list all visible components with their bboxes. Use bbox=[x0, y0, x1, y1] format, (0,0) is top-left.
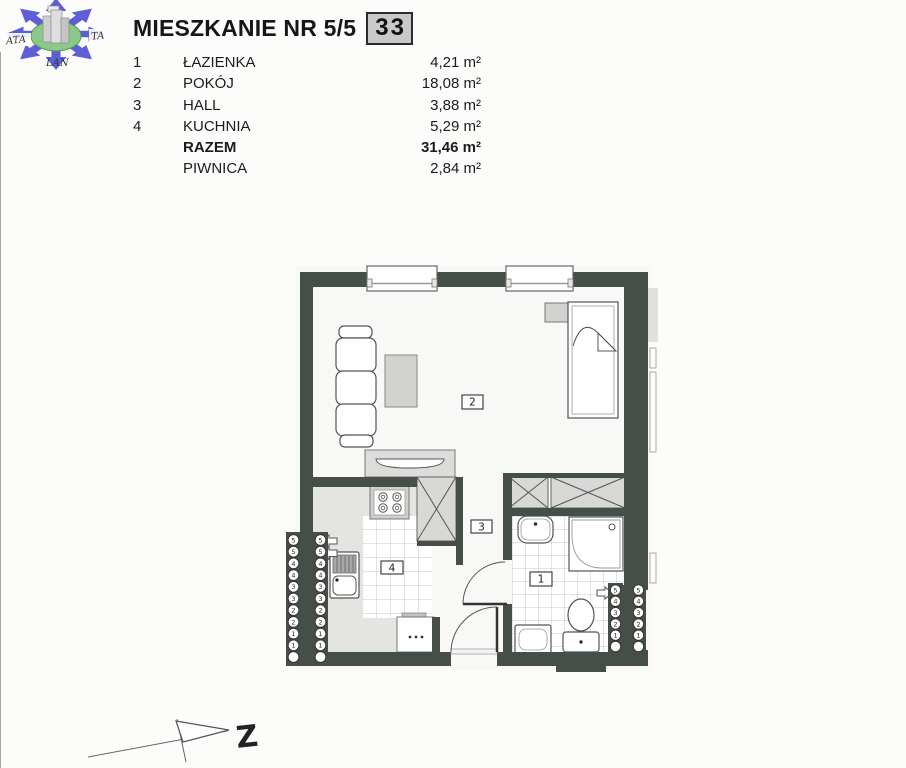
north-arrow: Z bbox=[40, 680, 300, 768]
room-name: HALL bbox=[183, 95, 353, 116]
window bbox=[367, 266, 437, 291]
buildings-icon bbox=[43, 6, 69, 43]
tv-stand bbox=[365, 450, 455, 477]
svg-text:2: 2 bbox=[291, 618, 295, 626]
logo-text-right: TA bbox=[91, 30, 105, 42]
svg-text:2: 2 bbox=[318, 607, 322, 615]
floor-plan: 5544332211 5544332211 54321 54321 2 3 4 … bbox=[270, 250, 670, 690]
svg-text:4: 4 bbox=[318, 572, 322, 580]
room-area: 5,29 m² bbox=[353, 116, 481, 137]
washing-machine bbox=[515, 625, 551, 654]
table-row: 4 KUCHNIA 5,29 m² bbox=[133, 116, 481, 137]
svg-text:5: 5 bbox=[318, 548, 322, 556]
svg-text:2: 2 bbox=[318, 618, 322, 626]
svg-text:1: 1 bbox=[636, 632, 640, 640]
room-table: 1 ŁAZIENKA 4,21 m² 2 POKÓJ 18,08 m² 3 HA… bbox=[133, 52, 481, 180]
room-area: 3,88 m² bbox=[353, 95, 481, 116]
radiator-left-outer: 5544332211 bbox=[288, 535, 299, 663]
svg-text:3: 3 bbox=[478, 522, 485, 534]
company-logo: ATA TA LAN bbox=[0, 0, 125, 75]
svg-text:2: 2 bbox=[469, 397, 476, 409]
svg-text:3: 3 bbox=[636, 609, 640, 617]
ventilation-shaft bbox=[417, 477, 456, 541]
north-arrowhead bbox=[176, 721, 229, 742]
header: MIESZKANIE NR 5/5 33 bbox=[133, 12, 413, 45]
wardrobe bbox=[551, 477, 625, 508]
svg-text:3: 3 bbox=[291, 583, 295, 591]
bathroom-sink bbox=[518, 516, 553, 543]
room-name: POKÓJ bbox=[183, 73, 353, 94]
scanned-floorplan-page: ATA TA LAN MIESZKANIE NR 5/5 33 1 ŁAZIEN… bbox=[0, 0, 906, 768]
kitchen-counter bbox=[397, 613, 434, 652]
svg-text:4: 4 bbox=[318, 560, 322, 568]
room-label-kuchnia: 4 bbox=[381, 561, 403, 575]
window bbox=[506, 266, 573, 291]
svg-text:5: 5 bbox=[291, 536, 295, 544]
shower bbox=[569, 517, 623, 571]
kitchen-sink bbox=[330, 552, 359, 598]
svg-text:4: 4 bbox=[613, 598, 617, 606]
svg-text:3: 3 bbox=[291, 595, 295, 603]
scan-edge-line bbox=[0, 52, 1, 768]
room-name: KUCHNIA bbox=[183, 116, 353, 137]
radiator-left-inner: 5544332211 bbox=[315, 535, 326, 663]
svg-text:5: 5 bbox=[318, 536, 322, 544]
room-no: 2 bbox=[133, 73, 183, 94]
room-area: 31,46 m² bbox=[353, 137, 481, 158]
neighbor-wall-stub bbox=[648, 288, 658, 342]
page-title: MIESZKANIE NR 5/5 bbox=[133, 15, 356, 42]
svg-text:1: 1 bbox=[318, 642, 322, 650]
room-label-pokoj: 2 bbox=[462, 395, 483, 409]
bed bbox=[568, 302, 618, 418]
room-no: 3 bbox=[133, 95, 183, 116]
logo-text-left: ATA bbox=[5, 34, 27, 47]
svg-text:1: 1 bbox=[613, 632, 617, 640]
coffee-table bbox=[385, 355, 417, 407]
svg-text:2: 2 bbox=[613, 620, 617, 628]
svg-text:4: 4 bbox=[389, 563, 396, 575]
svg-text:5: 5 bbox=[613, 586, 617, 594]
table-row: PIWNICA 2,84 m² bbox=[133, 158, 481, 179]
room-no: 1 bbox=[133, 52, 183, 73]
svg-text:1: 1 bbox=[538, 574, 545, 586]
svg-text:2: 2 bbox=[636, 620, 640, 628]
room-area: 18,08 m² bbox=[353, 73, 481, 94]
room-label-hall: 3 bbox=[471, 520, 492, 534]
north-label: Z bbox=[234, 719, 259, 756]
svg-text:5: 5 bbox=[291, 548, 295, 556]
svg-text:4: 4 bbox=[291, 560, 295, 568]
svg-text:5: 5 bbox=[636, 586, 640, 594]
stove bbox=[370, 486, 409, 519]
unit-number-badge: 33 bbox=[366, 12, 413, 45]
svg-text:1: 1 bbox=[291, 630, 295, 638]
svg-text:3: 3 bbox=[613, 609, 617, 617]
nightstand bbox=[545, 303, 570, 322]
room-area: 4,21 m² bbox=[353, 52, 481, 73]
room-no: 4 bbox=[133, 116, 183, 137]
room-label-lazienka: 1 bbox=[530, 572, 552, 586]
room-area: 2,84 m² bbox=[353, 158, 481, 179]
svg-text:3: 3 bbox=[318, 583, 322, 591]
svg-text:3: 3 bbox=[318, 595, 322, 603]
room-no bbox=[133, 137, 183, 158]
table-row: 2 POKÓJ 18,08 m² bbox=[133, 73, 481, 94]
svg-text:1: 1 bbox=[291, 642, 295, 650]
room-name: ŁAZIENKA bbox=[183, 52, 353, 73]
logo-text-bottom: LAN bbox=[45, 58, 70, 69]
room-name: RAZEM bbox=[183, 137, 353, 158]
table-row: 1 ŁAZIENKA 4,21 m² bbox=[133, 52, 481, 73]
wardrobe bbox=[509, 477, 548, 508]
table-row-total: RAZEM 31,46 m² bbox=[133, 137, 481, 158]
svg-text:4: 4 bbox=[636, 598, 640, 606]
table-row: 3 HALL 3,88 m² bbox=[133, 95, 481, 116]
svg-text:1: 1 bbox=[318, 630, 322, 638]
svg-text:4: 4 bbox=[291, 572, 295, 580]
svg-text:2: 2 bbox=[291, 607, 295, 615]
room-name: PIWNICA bbox=[183, 158, 353, 179]
sofa bbox=[336, 326, 376, 447]
room-no bbox=[133, 158, 183, 179]
